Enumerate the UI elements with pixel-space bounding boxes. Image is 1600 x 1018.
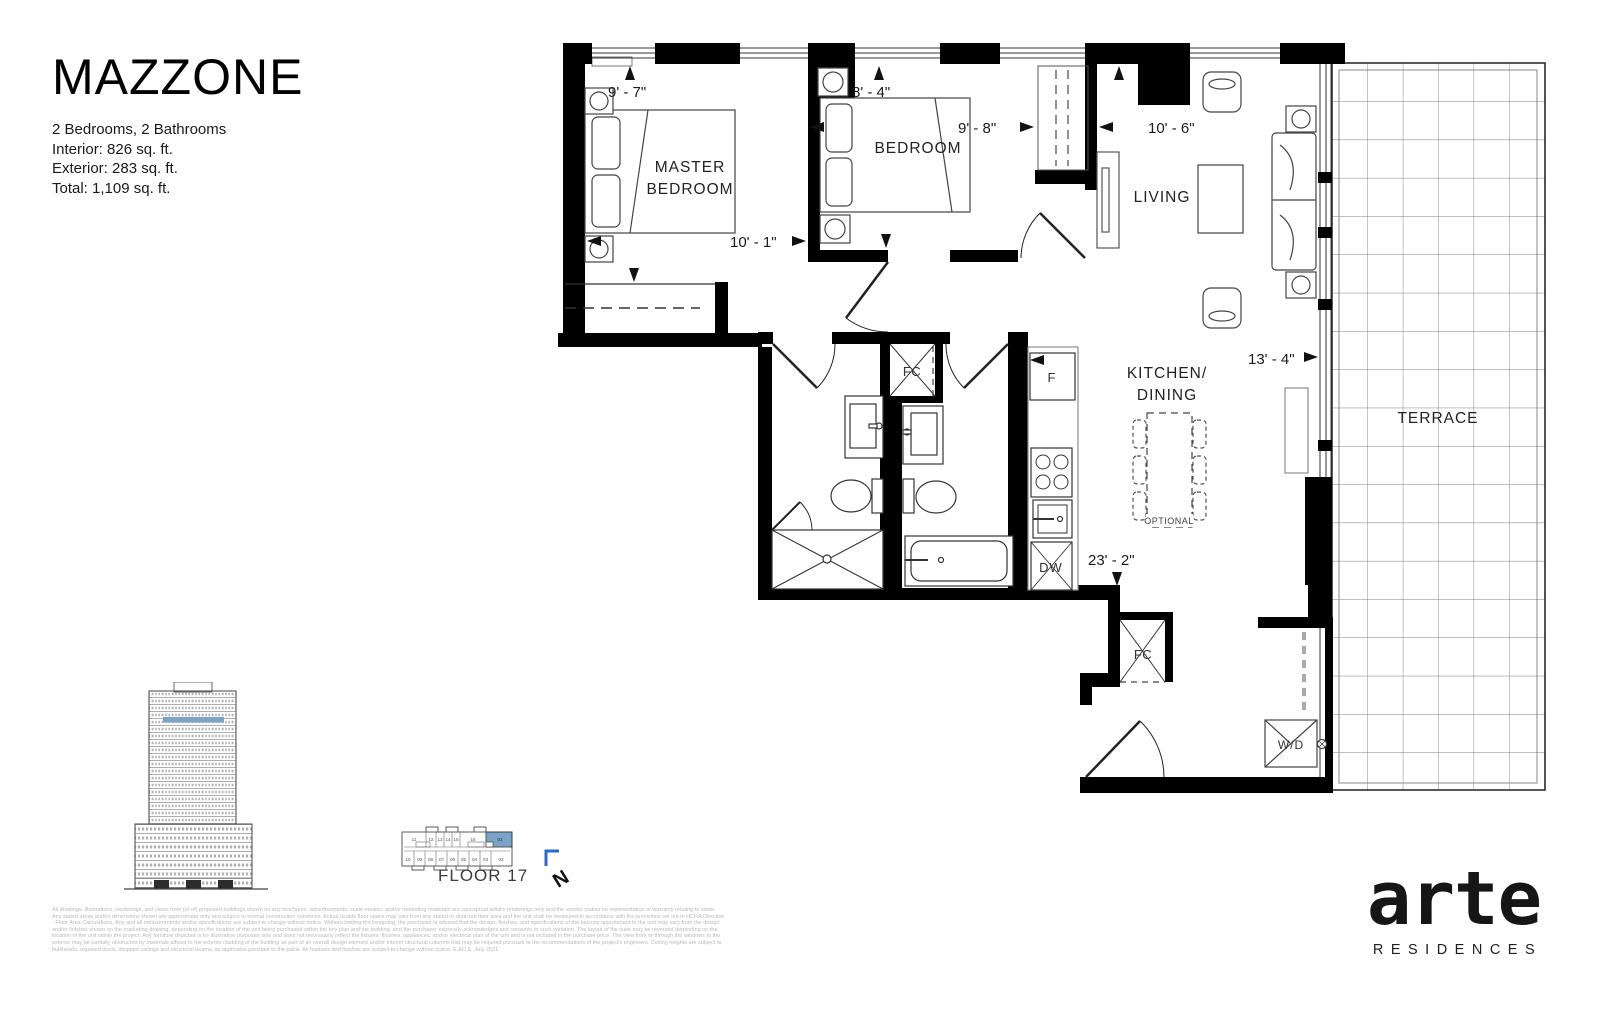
floorplan-sheet: MAZZONE 2 Bedrooms, 2 Bathrooms Interior… — [0, 0, 1600, 1018]
legal-line: - Floor Area Calculations. Any and all m… — [52, 920, 792, 927]
label-master-line2: BEDROOM — [646, 181, 733, 198]
dim-bedroom-depth: 9' - 8" — [958, 120, 996, 137]
label-dishwasher: DW — [1039, 560, 1063, 575]
north-letter: N — [549, 866, 573, 892]
svg-text:15: 15 — [453, 837, 459, 842]
north-arrow-icon: N — [540, 846, 580, 898]
floor-label: FLOOR 17 — [438, 866, 528, 886]
brand-tagline: RESIDENCES — [1358, 942, 1550, 958]
spec-exterior: Exterior: 283 sq. ft. — [52, 159, 303, 179]
label-washer-dryer: W/D — [1278, 738, 1304, 752]
svg-text:13: 13 — [437, 837, 443, 842]
svg-text:11: 11 — [412, 837, 417, 842]
dim-kitchen-width: 13' - 4" — [1248, 351, 1295, 368]
label-fan-coil-1: FC — [903, 364, 921, 379]
kitchen-counters — [1028, 347, 1308, 590]
legal-line: bulkheads, exposed ducts, dropped ceilin… — [52, 947, 792, 954]
label-terrace: TERRACE — [1397, 410, 1478, 427]
svg-text:06: 06 — [450, 857, 456, 862]
unit-specs: 2 Bedrooms, 2 Bathrooms Interior: 826 sq… — [52, 120, 303, 198]
svg-text:16: 16 — [470, 837, 476, 842]
dining-set — [1133, 413, 1206, 527]
label-master-line1: MASTER — [655, 159, 726, 176]
svg-text:03: 03 — [483, 857, 489, 862]
dim-bedroom-width: 8' - 4" — [852, 84, 890, 101]
svg-text:02: 02 — [498, 857, 504, 862]
svg-text:09: 09 — [417, 857, 423, 862]
legal-line: Any stated areas and/or dimensions shown… — [52, 914, 792, 921]
label-kitchen-line1: KITCHEN/ — [1127, 365, 1207, 382]
dim-master-depth: 10' - 1" — [730, 234, 777, 251]
spec-bed-bath: 2 Bedrooms, 2 Bathrooms — [52, 120, 303, 140]
brand-logo: arte RESIDENCES — [1358, 862, 1550, 958]
svg-text:07: 07 — [439, 857, 445, 862]
legal-line: exterior may be partially obstructed by … — [52, 940, 792, 947]
legal-line: All drawings, illustrations, renderings,… — [52, 907, 792, 914]
page-title: MAZZONE — [52, 48, 303, 106]
label-living: LIVING — [1134, 189, 1191, 206]
label-fan-coil-2: FC — [1134, 647, 1152, 662]
svg-text:05: 05 — [461, 857, 467, 862]
label-fridge: F — [1048, 370, 1057, 385]
title-block: MAZZONE 2 Bedrooms, 2 Bathrooms Interior… — [52, 48, 303, 198]
legal-line: location of the unit within the project.… — [52, 933, 792, 940]
highlighted-floor-band — [163, 717, 224, 723]
label-kitchen-line2: DINING — [1137, 387, 1197, 404]
label-bedroom: BEDROOM — [874, 140, 961, 157]
svg-text:10: 10 — [405, 857, 411, 862]
brand-name: arte — [1358, 862, 1550, 936]
floor-plan-drawing: MASTER BEDROOM BEDROOM LIVING KITCHEN/ D… — [555, 30, 1565, 810]
legal-line: and/or finishes shown on the marketing d… — [52, 927, 792, 934]
svg-text:08: 08 — [428, 857, 434, 862]
keyplan-unit-01: 01 — [497, 837, 503, 842]
spec-interior: Interior: 826 sq. ft. — [52, 140, 303, 160]
svg-text:04: 04 — [472, 857, 478, 862]
building-elevation — [122, 682, 270, 910]
spec-total: Total: 1,109 sq. ft. — [52, 179, 303, 199]
svg-text:14: 14 — [445, 837, 451, 842]
label-optional: OPTIONAL — [1144, 516, 1194, 526]
dim-living-width: 10' - 6" — [1148, 120, 1195, 137]
dim-master-width: 9' - 7" — [608, 84, 646, 101]
svg-text:12: 12 — [428, 837, 434, 842]
legal-disclaimer: All drawings, illustrations, renderings,… — [52, 907, 792, 953]
dim-suite-depth: 23' - 2" — [1088, 552, 1135, 569]
